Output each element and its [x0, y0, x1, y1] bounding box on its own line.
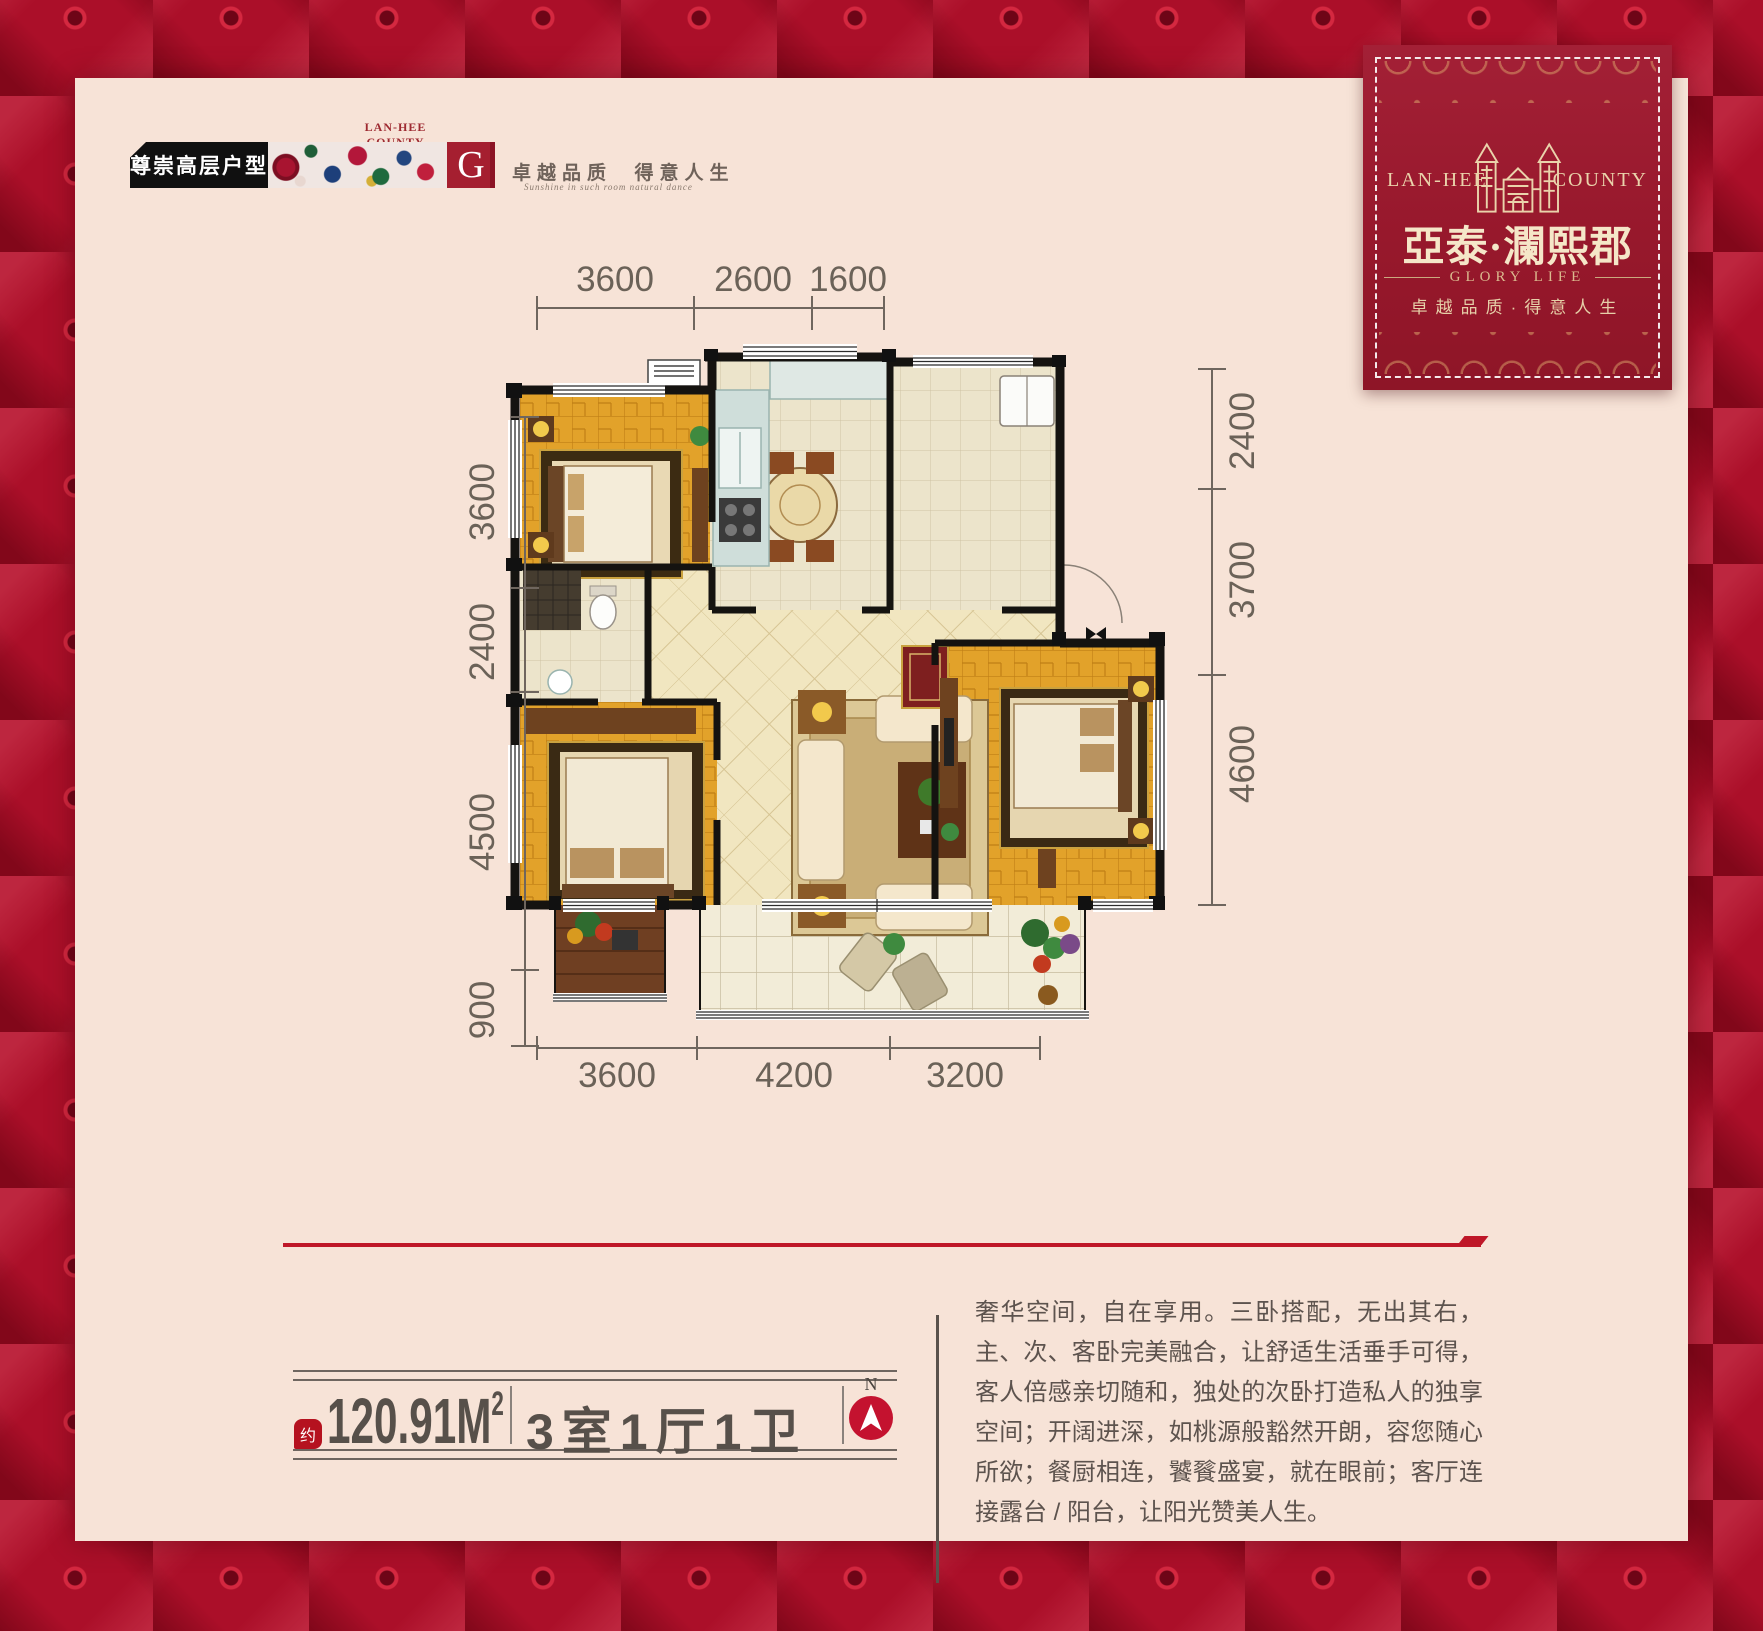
dim-label-top-2: 2600 [703, 260, 803, 300]
compass: N [845, 1374, 897, 1452]
area-exponent: 2 [491, 1385, 503, 1423]
dim-label-bottom-3: 3200 [915, 1056, 1015, 1096]
info-divider-1 [510, 1386, 512, 1444]
info-divider-2 [842, 1386, 844, 1444]
poster-page: LAN-HEE COUNTY 尊崇高层户型 G 卓越品质 得意人生 Sunshi… [0, 0, 1763, 1631]
dim-label-bottom-1: 3600 [567, 1056, 667, 1096]
approx-badge: 约 [294, 1419, 322, 1449]
dim-label-top-3: 1600 [798, 260, 898, 300]
dim-label-right-1: 2400 [1223, 381, 1263, 481]
dim-label-left-3: 4500 [463, 782, 503, 882]
description-rule [936, 1315, 939, 1583]
info-bar-top-rule [293, 1370, 897, 1381]
red-separator-line [283, 1243, 1481, 1247]
area-value: 120.91M2 [327, 1384, 504, 1458]
dim-label-top-1: 3600 [565, 260, 665, 300]
dim-label-left-1: 3600 [463, 452, 503, 552]
dim-label-bottom-2: 4200 [744, 1056, 844, 1096]
compass-needle-icon [849, 1396, 893, 1440]
description-text: 奢华空间，自在享用。三卧搭配，无出其右，主、次、客卧完美融合，让舒适生活垂手可得… [975, 1293, 1483, 1533]
dim-label-left-2: 2400 [463, 592, 503, 692]
dim-label-right-2: 3700 [1223, 530, 1263, 630]
dim-label-left-4: 900 [463, 960, 503, 1060]
dim-label-right-3: 4600 [1223, 714, 1263, 814]
layout-text: 3室1厅1卫 [526, 1392, 807, 1464]
compass-north-label: N [845, 1374, 897, 1395]
